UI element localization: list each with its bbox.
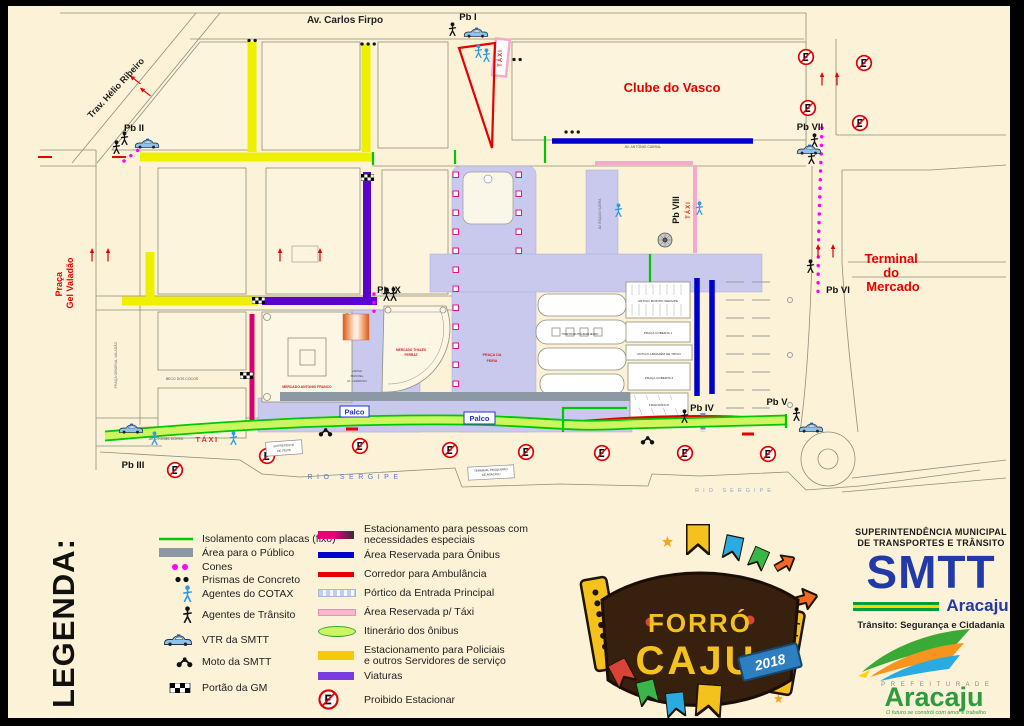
legend-item-proibido: Proibido Estacionar: [318, 689, 586, 710]
legend-item-onibus: Área Reservada para Ônibus: [318, 549, 586, 561]
post-label-pb9: Pb IX: [377, 285, 401, 296]
legend-label: Área Reservada p/ Táxi: [364, 606, 474, 618]
entreposto-box: ENTREPOSTO DE PEIXE: [266, 440, 303, 456]
flag-icon: [695, 683, 722, 718]
building-label-thales: MERCADO THALES: [396, 348, 426, 352]
street-label-carlos-firpo: Av. Carlos Firpo: [307, 15, 383, 26]
police-parking-swatch: [318, 651, 364, 660]
post-label-pb5: Pb V: [766, 397, 788, 408]
moto-icon: [116, 656, 202, 668]
flag-icon: [747, 546, 770, 572]
palco-label: Palco: [469, 414, 489, 423]
legend-item-itinerario: Itinerário dos ônibus: [318, 625, 586, 637]
river-label: RIO SERGIPE: [307, 474, 402, 481]
building-label-largo: MANOEL: [351, 374, 364, 378]
forro-caju-logo: FORRÓ CAJU 2018: [578, 522, 822, 718]
legend-label-line: e outros Servidores de serviço: [364, 655, 506, 667]
smtt-superintendencia-line1: SUPERINTENDÊNCIA MUNICIPAL: [845, 527, 1017, 538]
legend-label: Pórtico da Entrada Principal: [364, 587, 494, 599]
post-label-pb6: Pb VI: [826, 285, 850, 296]
transit-agent-icon: [116, 606, 202, 623]
building-label-feira: PRAÇA DA: [483, 353, 502, 357]
flag-icon: [686, 524, 710, 555]
forro-caju-traffic-plan-poster: Palco Palco ENTREPOSTO DE PEIXE TERMINAL…: [0, 0, 1024, 726]
legend-label: Moto da SMTT: [202, 656, 271, 668]
flag-icon: [665, 691, 687, 718]
building-label-antonio-franco: MERCADO ANTONIO FRANCO: [282, 385, 332, 389]
legend-item-ambulancia: Corredor para Ambulância: [318, 568, 586, 580]
legend-label: Agentes do COTAX: [202, 588, 293, 600]
bus-itinerary-swatch: [318, 626, 364, 637]
building-label-moinho: ANTIGO MOINHO SERGIPE: [638, 299, 678, 303]
legend-label: Viaturas: [364, 670, 402, 682]
monument-marker: [658, 233, 672, 247]
smtt-bar-row: Aracaju: [845, 596, 1017, 616]
taxi-label: TÁXI: [497, 49, 504, 67]
area-label-clube-vasco: Clube do Vasco: [624, 80, 721, 95]
praca-line: Gel Valadão: [65, 257, 75, 309]
post-label-pb3: Pb III: [122, 460, 145, 471]
legend-title: LEGENDA:: [46, 538, 82, 708]
building-label-coberta1: PRAÇA COBERTA 1: [644, 331, 673, 335]
flag-icon: [722, 534, 745, 561]
legend-item-portico: Pórtico da Entrada Principal: [318, 587, 586, 599]
legend-label: Estacionamento para Policiais e outros S…: [364, 645, 506, 666]
viaturas-swatch: [318, 672, 364, 680]
taxi-area-swatch: [318, 609, 364, 616]
legend-label: Portão da GM: [202, 682, 267, 694]
portico-swatch: [318, 589, 364, 597]
cotax-agent-icon: [116, 585, 202, 602]
legend-label: Área para o Público: [202, 547, 294, 559]
legend-label: Proibido Estacionar: [364, 694, 455, 706]
building-label-largo: LARGO: [352, 369, 363, 373]
legend-item-viaturas: Viaturas: [318, 670, 586, 682]
smtt-name: SMTT: [845, 549, 1017, 595]
post-label-pb8: Pb VIII: [671, 196, 681, 224]
legend-item-policiais: Estacionamento para Policiais e outros S…: [318, 645, 586, 666]
post-label-pb2: Pb II: [124, 123, 144, 134]
legend-label-line: necessidades especiais: [364, 534, 475, 546]
ambulance-swatch: [318, 572, 364, 577]
prisms-swatch: [116, 576, 202, 583]
post-label-pb4: Pb IV: [690, 403, 714, 414]
terminal-pesqueiro-box: TERMINAL PESQUEIRO DE ARACAJU: [468, 465, 515, 480]
smtt-logo-block: SUPERINTENDÊNCIA MUNICIPAL DE TRANSPORTE…: [845, 527, 1017, 631]
legend-label: Agentes de Trânsito: [202, 609, 295, 621]
legend-label: Prismas de Concreto: [202, 574, 300, 586]
smtt-city: Aracaju: [946, 596, 1008, 616]
star-icon: [774, 694, 783, 703]
legend-label: Itinerário dos ônibus: [364, 625, 459, 637]
special-parking-swatch: [318, 531, 364, 539]
green-line-swatch: [116, 536, 202, 542]
cones-swatch: [116, 563, 202, 571]
street-label-otoniel-dorea: AV. OTONIEL DÓREA: [149, 436, 184, 441]
legend-item-taxi: Área Reservada p/ Táxi: [318, 606, 586, 618]
public-strip: [280, 392, 630, 401]
street-label-esquio-sueira: AV. ÉSQUIO SUEIRA: [597, 198, 602, 230]
building-label-horti: HORTIFRUTIGRANJEIRO: [562, 332, 599, 336]
street-label-beco-cocos: BECO DOS COCOS: [166, 377, 199, 381]
legend-label: Cones: [202, 561, 232, 573]
street-label-antonio-cabral: AV. ANTÔNIO CABRAL: [625, 144, 662, 149]
gray-area-swatch: [116, 548, 202, 557]
structure-detail: [484, 175, 492, 183]
terminal-line: do: [883, 265, 899, 280]
prefeitura-tagline: O futuro se constrói com amor e trabalho: [886, 710, 986, 716]
smtt-flag-bar: [853, 602, 939, 611]
star-icon: [662, 536, 673, 547]
prefeitura-name: Aracaju: [884, 682, 983, 712]
building-label-largo: M. CARDOSO: [347, 379, 367, 383]
building-label-feira: FEIRA: [487, 359, 498, 363]
taxi-label: TÁXI: [195, 435, 218, 444]
palco-label: Palco: [344, 408, 364, 417]
main-gate-structure: [343, 314, 369, 340]
terminal-line: Mercado: [866, 279, 920, 294]
legend-label: Área Reservada para Ônibus: [364, 549, 500, 561]
prefeitura-aracaju-logo: P R E F E I T U R A D E Aracaju O futuro…: [850, 628, 1018, 716]
terminal-line: Terminal: [865, 251, 918, 266]
no-parking-icon: [318, 689, 364, 710]
building-label-coberta2: PRAÇA COBERTA 2: [645, 376, 674, 380]
legend-item-estacionamento-especial: Estacionamento para pessoas com necessid…: [318, 524, 586, 545]
building-label-armazem: ANTIGO ARMAZÉM DE TRIGO: [637, 351, 681, 356]
building-label-thales: FERRAZ: [405, 353, 418, 357]
logo-word-forro: FORRÓ: [648, 608, 752, 638]
street-label-praca-general: PRAÇA GENERAL VALADÃO: [113, 341, 118, 388]
post-label-pb7: Pb VII: [797, 122, 823, 133]
post-label-pb1: Pb I: [459, 12, 476, 23]
legend-label: Isolamento com placas (fixo): [202, 533, 336, 545]
bus-area-swatch: [318, 552, 364, 558]
legend-label: Corredor para Ambulância: [364, 568, 487, 580]
building-label-frigorifico: FRIGORÍFICO: [649, 403, 670, 407]
legend-label: VTR da SMTT: [202, 634, 269, 646]
river-label: RIO SERGIPE: [695, 488, 775, 494]
event-traffic-map: Palco Palco ENTREPOSTO DE PEIXE TERMINAL…: [8, 6, 1010, 518]
praca-line: Praça: [54, 271, 64, 297]
legend-label: Estacionamento para pessoas com necessid…: [364, 524, 528, 545]
taxi-label: TÁXI: [685, 201, 692, 219]
arrow-flag-icon: [771, 550, 799, 576]
gm-gate-icon: [116, 683, 202, 693]
vtr-car-icon: [116, 634, 202, 646]
